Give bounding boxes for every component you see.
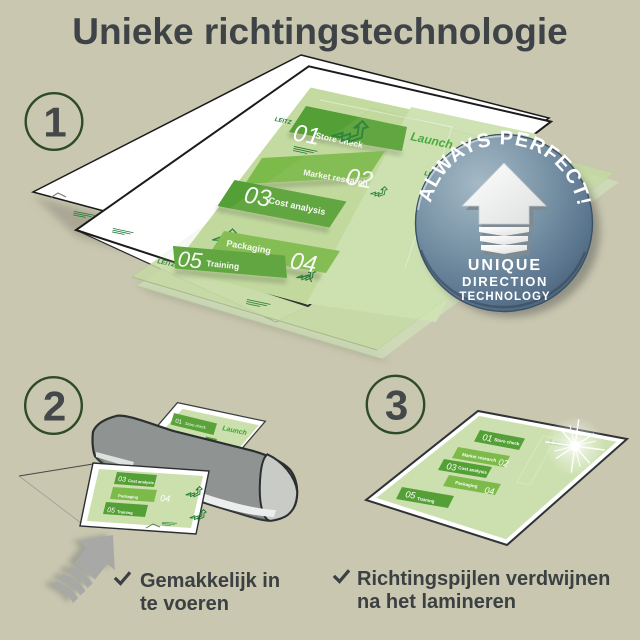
svg-text:04: 04 bbox=[160, 493, 171, 504]
svg-text:1: 1 bbox=[43, 99, 66, 146]
svg-text:03: 03 bbox=[118, 476, 126, 484]
svg-text:03: 03 bbox=[446, 461, 458, 473]
svg-text:3: 3 bbox=[385, 382, 408, 429]
svg-text:05: 05 bbox=[107, 507, 115, 515]
svg-text:TECHNOLOGY: TECHNOLOGY bbox=[459, 291, 550, 303]
svg-text:2: 2 bbox=[43, 383, 66, 430]
svg-text:02: 02 bbox=[498, 457, 510, 469]
svg-text:04: 04 bbox=[484, 485, 496, 497]
svg-text:01: 01 bbox=[482, 432, 494, 444]
svg-text:DIRECTION: DIRECTION bbox=[462, 274, 548, 289]
svg-text:UNIQUE: UNIQUE bbox=[468, 257, 542, 274]
